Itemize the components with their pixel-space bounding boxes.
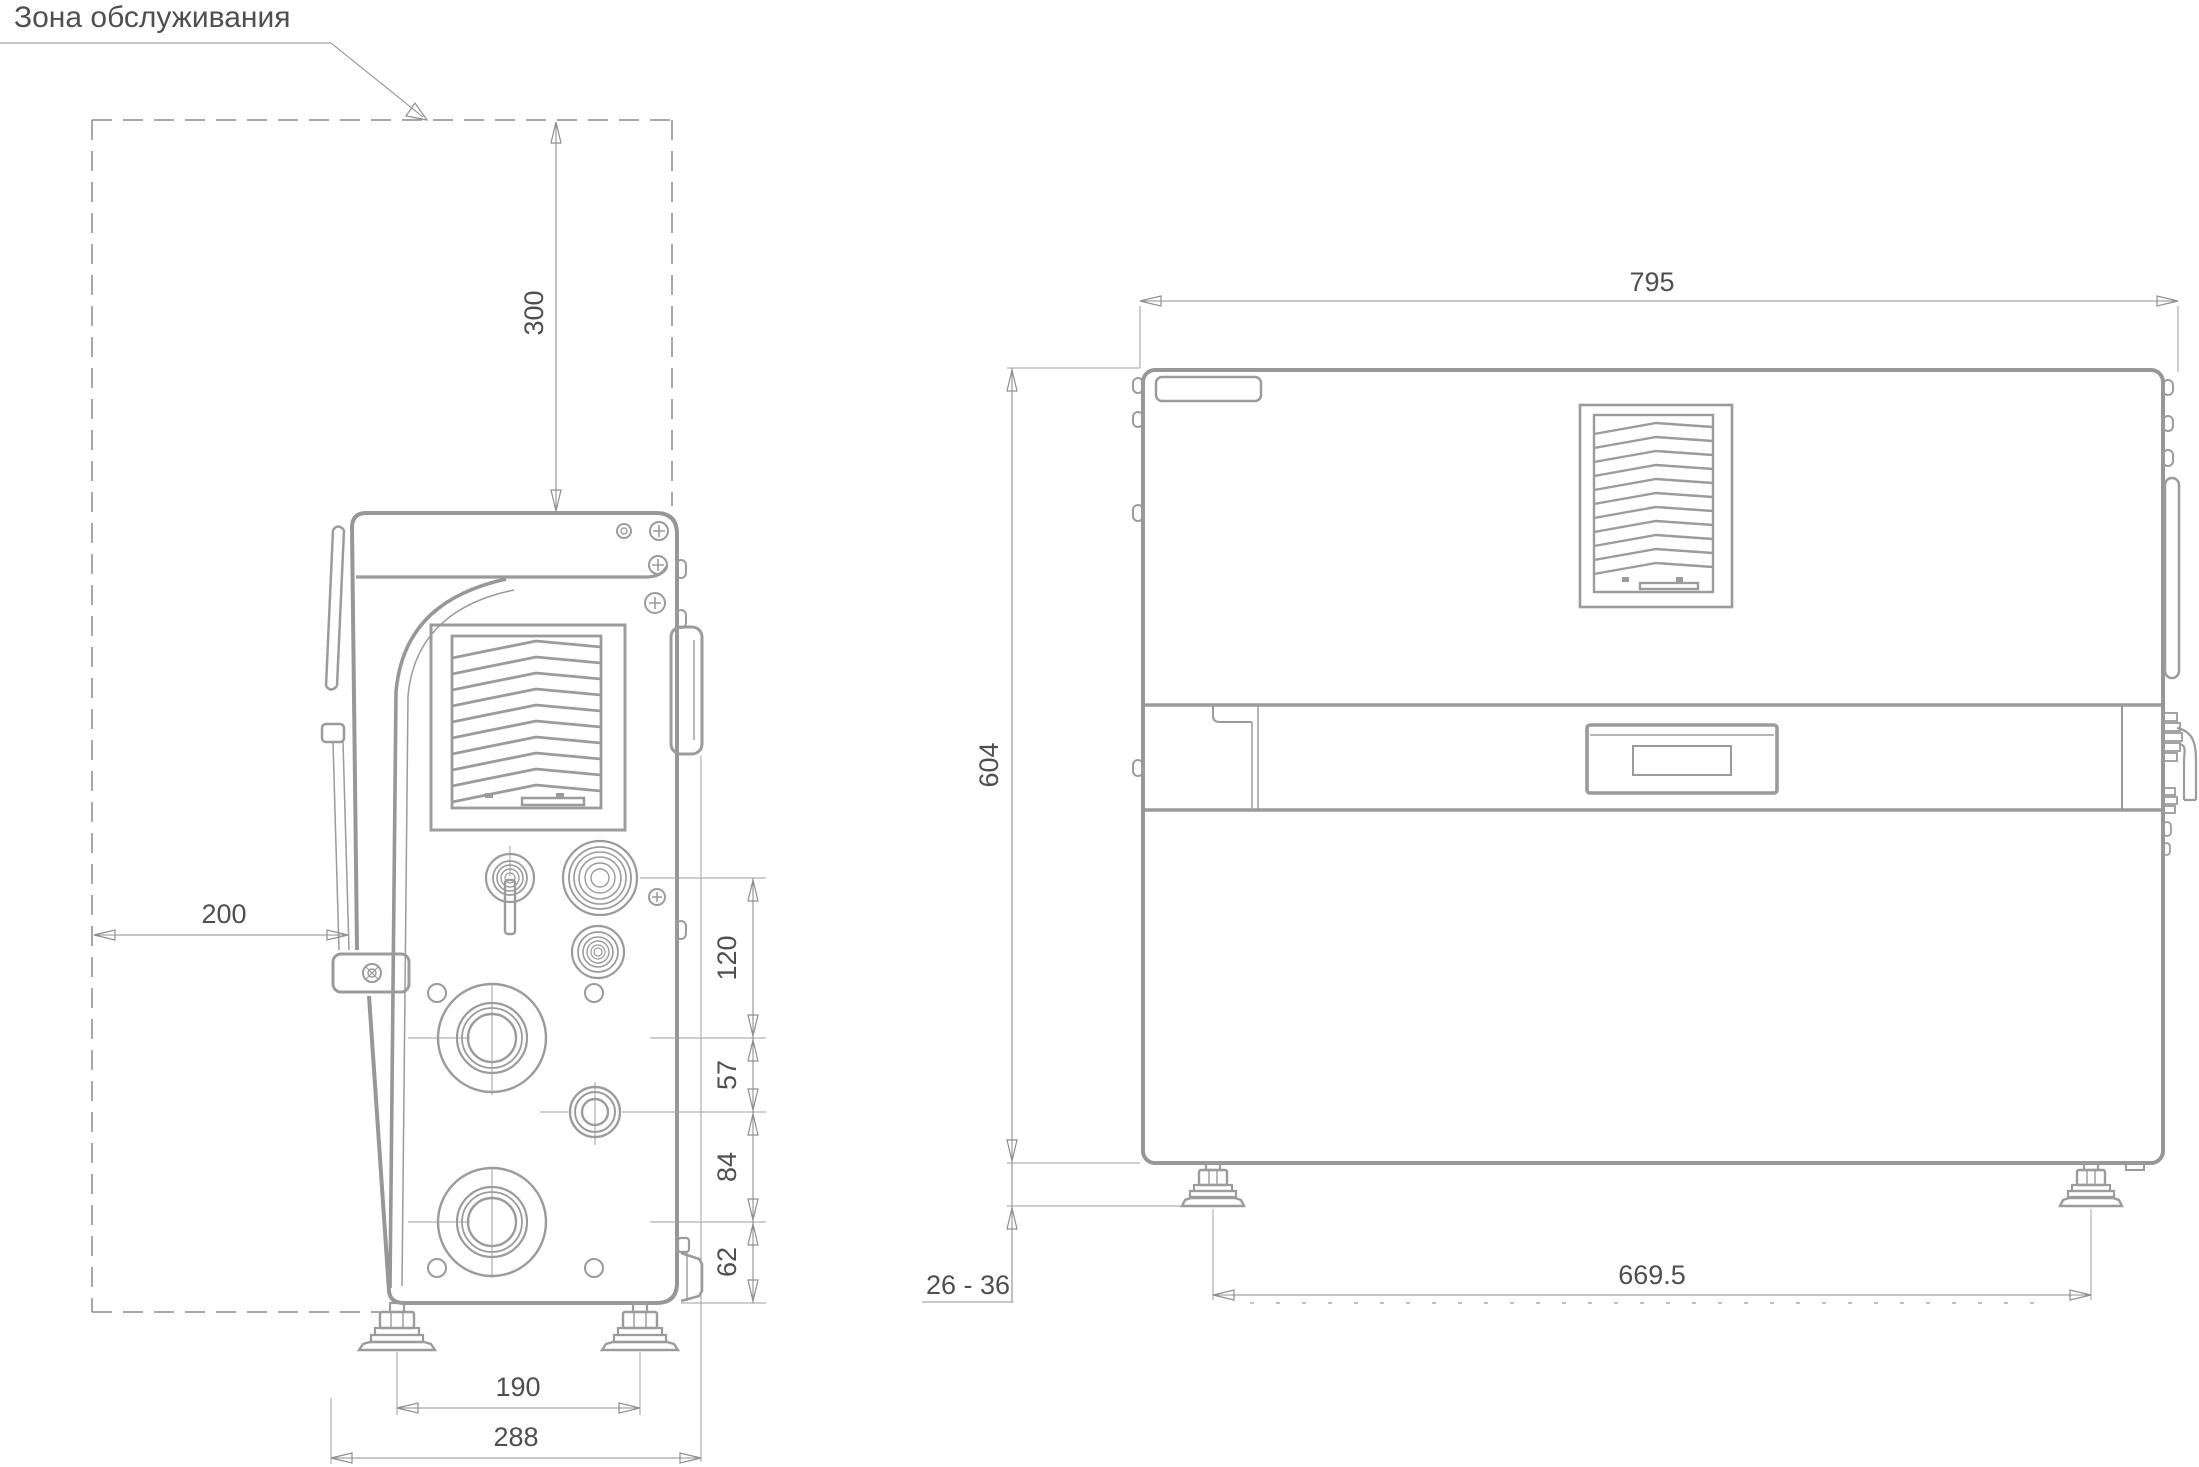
round-connector-large (563, 841, 637, 915)
dim-288-label: 288 (493, 1422, 538, 1452)
front-door-handle (2165, 478, 2179, 678)
gas-connector (540, 1082, 620, 1145)
rear-handle-strip (326, 527, 344, 690)
connector-panel (408, 841, 665, 1278)
top-cover-seam (356, 566, 667, 577)
side-vent-grille (431, 625, 625, 830)
adjustable-foot (2060, 1163, 2122, 1206)
top-screws (617, 522, 668, 613)
front-view (1133, 370, 2196, 1206)
dim-669-5-label: 669.5 (1618, 1260, 1686, 1290)
current-socket-bottom (408, 1168, 546, 1278)
bottom-latch (678, 1238, 702, 1301)
dim-300-label: 300 (519, 290, 549, 335)
grille-louvers (1594, 423, 1713, 574)
toggle-switch (486, 846, 534, 934)
phillips-screw-icon (649, 556, 667, 574)
front-cowl-outer (390, 579, 506, 1288)
rear-handle-hook (322, 724, 344, 742)
round-connector-medium (572, 926, 624, 978)
rear-bracket-screw-icon (363, 964, 381, 982)
leader-line (0, 43, 423, 117)
technical-drawing: Зона обслуживания (0, 0, 2199, 1467)
grille-nub (1676, 577, 1683, 582)
cable-gland-lower (2163, 788, 2177, 813)
panel-hole (585, 984, 603, 1002)
front-view-dimensions: 795 604 26 - 36 669.5 (922, 267, 2178, 1303)
current-socket-top (408, 984, 546, 1095)
seam-step (1213, 705, 1252, 722)
grille-base (1640, 583, 1698, 589)
adjustable-foot (1182, 1163, 1244, 1206)
service-zone-label: Зона обслуживания (14, 1, 290, 34)
hose (2177, 728, 2196, 800)
screw-icon (617, 524, 631, 538)
handle-recess (1587, 725, 1777, 793)
panel-hole (585, 1259, 603, 1277)
right-edge-details (2163, 380, 2196, 855)
cable-gland-upper (2163, 713, 2182, 761)
grille-louvers (452, 641, 601, 802)
drawing-page: Зона обслуживания (0, 0, 2199, 1467)
toggle-lever (505, 880, 515, 934)
phillips-screw-icon (649, 889, 665, 905)
dim-120-label: 120 (712, 935, 742, 980)
rear-bracket (333, 954, 409, 992)
dim-84-label: 84 (712, 1152, 742, 1182)
dim-26-36-label: 26 - 36 (926, 1270, 1010, 1300)
left-column-line (1252, 705, 1258, 810)
adjustable-foot (602, 1303, 678, 1350)
dim-190-label: 190 (495, 1372, 540, 1402)
phillips-screw-icon (650, 522, 668, 540)
panel-hole (428, 1259, 446, 1277)
grille-base (522, 798, 584, 805)
front-vent-grille (1580, 405, 1732, 607)
dim-795-label: 795 (1629, 267, 1674, 297)
adjustable-foot (359, 1303, 435, 1350)
dim-57-label: 57 (712, 1060, 742, 1090)
recess-slot (1633, 746, 1731, 775)
front-body-outline (1143, 370, 2163, 1163)
grille-nub (485, 793, 493, 798)
phillips-screw-icon (645, 593, 665, 613)
grille-nub (1622, 577, 1629, 582)
service-zone-callout: Зона обслуживания (0, 1, 427, 120)
panel-hole (428, 984, 446, 1002)
side-view (322, 513, 702, 1462)
service-zone-boundary (92, 120, 672, 1312)
dim-chain-connectors: 120 57 84 62 (622, 878, 766, 1303)
grille-nub (556, 793, 564, 798)
rating-plate (1156, 377, 1261, 401)
rear-strip-lines (333, 742, 349, 950)
dim-604-label: 604 (974, 742, 1004, 787)
dim-200-label: 200 (201, 899, 246, 929)
dim-62-label: 62 (712, 1247, 742, 1277)
